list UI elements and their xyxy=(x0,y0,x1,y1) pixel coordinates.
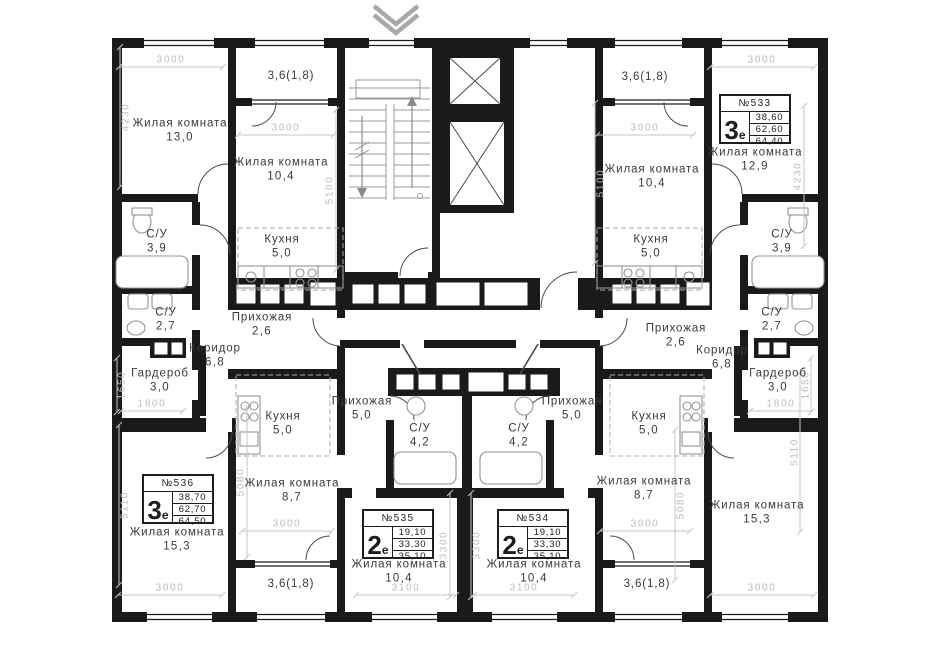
room-area: 2,7 xyxy=(155,320,177,334)
room-area: 3,9 xyxy=(771,242,793,256)
room-name: Жилая комната xyxy=(605,164,700,176)
apartment-type: 3е xyxy=(721,112,750,142)
sink-icon xyxy=(407,397,425,415)
room-area: 12,9 xyxy=(708,160,803,174)
room-label: С/У4,2 xyxy=(508,422,530,451)
toilet-icon xyxy=(795,321,813,335)
dimension-label: 4230 xyxy=(121,103,132,132)
apartment-areas: 19,1033,3035,10 xyxy=(393,527,432,557)
room-label: Жилая комната10,4 xyxy=(234,156,329,185)
room-label: Кухня5,0 xyxy=(264,233,299,262)
balcony-label: 3,6(1,8) xyxy=(622,71,669,83)
apartment-area-value: 33,30 xyxy=(528,539,567,551)
apartment-area-value: 38,70 xyxy=(173,492,212,504)
apartment-area-value: 35,10 xyxy=(528,551,567,562)
dimension-label: 5110 xyxy=(790,438,801,466)
room-label: Гардероб3,0 xyxy=(131,367,189,396)
apartment-areas: 38,6062,6064,40 xyxy=(750,112,789,142)
apartment-area-value: 35,10 xyxy=(393,551,432,562)
room-area: 10,4 xyxy=(352,572,447,586)
room-label: Жилая комната8,7 xyxy=(597,475,692,504)
room-label: С/У3,9 xyxy=(771,228,793,257)
apartment-type: 2е xyxy=(364,527,393,557)
floor-plan-drawing xyxy=(0,0,950,672)
bathtub-icon xyxy=(394,452,456,484)
room-area: 5,0 xyxy=(332,409,393,423)
apartment-area-value: 38,60 xyxy=(750,112,789,124)
apartment-details: 3е38,6062,6064,40 xyxy=(721,112,789,142)
room-area: 3,0 xyxy=(131,381,189,395)
room-label: Прихожая5,0 xyxy=(542,395,603,424)
room-area: 10,4 xyxy=(605,177,700,191)
apartment-area-value: 19,10 xyxy=(393,527,432,539)
dimension-label: 3000 xyxy=(631,519,660,530)
room-name: С/У xyxy=(508,423,530,435)
staircase xyxy=(349,80,430,200)
room-label: Гардероб3,0 xyxy=(749,367,807,396)
apartment-info-box: №5342е19,1033,3035,10 xyxy=(497,509,569,559)
room-name: Прихожая xyxy=(646,323,707,335)
apartment-area-value: 64,40 xyxy=(750,136,789,147)
room-area: 3,0 xyxy=(749,381,807,395)
apartment-number: №536 xyxy=(144,476,212,492)
room-area: 5,0 xyxy=(264,247,299,261)
room-area: 6,8 xyxy=(189,356,241,370)
kitchen-sink-icon xyxy=(240,432,258,446)
dimension-label: 1800 xyxy=(767,399,796,410)
apartment-info-box: №5333е38,6062,6064,40 xyxy=(719,94,791,144)
room-area: 8,7 xyxy=(245,491,340,505)
room-label: Жилая комната10,4 xyxy=(605,163,700,192)
room-name: С/У xyxy=(155,307,177,319)
room-area: 5,0 xyxy=(631,424,666,438)
dimension-label: 3300 xyxy=(439,531,450,560)
apartment-info-box: №5363е38,7062,7064,50 xyxy=(142,474,214,524)
room-name: Жилая комната xyxy=(710,500,805,512)
room-name: Жилая комната xyxy=(245,478,340,490)
room-name: Прихожая xyxy=(332,396,393,408)
elevator-shafts xyxy=(440,48,514,213)
dimension-label: 3000 xyxy=(748,55,777,66)
stove-burner-icon xyxy=(296,269,304,277)
room-label: Жилая комната15,3 xyxy=(710,499,805,528)
dimension-label: 5110 xyxy=(120,491,131,519)
room-label: Коридор6,8 xyxy=(189,342,241,371)
apartment-type: 2е xyxy=(499,527,528,557)
room-name: Жилая комната xyxy=(133,118,228,130)
balcony-label: 3,6(1,8) xyxy=(268,578,315,590)
room-area: 5,0 xyxy=(265,424,300,438)
entrance-chevron-icon xyxy=(374,6,418,33)
room-area: 10,4 xyxy=(487,572,582,586)
apartment-area-value: 33,30 xyxy=(393,539,432,551)
room-label: Жилая комната13,0 xyxy=(133,117,228,146)
room-area: 4,2 xyxy=(409,436,431,450)
room-label: С/У4,2 xyxy=(409,422,431,451)
room-label: Жилая комната12,9 xyxy=(708,146,803,175)
dimension-label: 1650 xyxy=(117,371,128,400)
apartment-type: 3е xyxy=(144,492,173,522)
room-name: Гардероб xyxy=(749,368,807,380)
bathtub-icon xyxy=(116,256,188,288)
apartment-area-value: 64,50 xyxy=(173,516,212,527)
room-label: С/У2,7 xyxy=(761,306,783,335)
room-area: 5,0 xyxy=(633,247,668,261)
room-label: Жилая комната8,7 xyxy=(245,477,340,506)
room-name: С/У xyxy=(409,423,431,435)
room-name: С/У xyxy=(771,229,793,241)
sink-icon xyxy=(128,294,148,309)
room-area: 2,6 xyxy=(646,336,707,350)
bathtub-icon xyxy=(752,256,824,288)
dimension-label: 3300 xyxy=(472,531,483,560)
sink-icon xyxy=(515,397,533,415)
apartment-number: №533 xyxy=(721,96,789,112)
room-area: 2,7 xyxy=(761,320,783,334)
bathtub-icon xyxy=(480,452,542,484)
room-label: Кухня5,0 xyxy=(265,410,300,439)
room-label: Жилая комната15,3 xyxy=(130,526,225,555)
room-label: С/У3,9 xyxy=(146,228,168,257)
room-name: С/У xyxy=(146,229,168,241)
apartment-details: 2е19,1033,3035,10 xyxy=(499,527,567,557)
room-label: Кухня5,0 xyxy=(633,233,668,262)
room-name: Коридор xyxy=(189,343,241,355)
dimension-label: 3000 xyxy=(272,123,301,134)
apartment-number: №535 xyxy=(364,511,432,527)
room-area: 15,3 xyxy=(710,513,805,527)
room-name: Жилая комната xyxy=(597,476,692,488)
dimension-label: 3000 xyxy=(631,123,660,134)
room-label: Прихожая2,6 xyxy=(646,322,707,351)
room-label: С/У2,7 xyxy=(155,306,177,335)
dimension-label: 3000 xyxy=(156,583,185,594)
apartment-info-box: №5352е19,1033,3035,10 xyxy=(362,509,434,559)
apartment-area-value: 62,60 xyxy=(750,124,789,136)
room-label: Кухня5,0 xyxy=(631,410,666,439)
room-label: Прихожая2,6 xyxy=(232,311,293,340)
room-label: Прихожая5,0 xyxy=(332,395,393,424)
room-name: Кухня xyxy=(633,234,668,246)
room-area: 2,6 xyxy=(232,325,293,339)
apartment-area-value: 19,10 xyxy=(528,527,567,539)
room-name: Прихожая xyxy=(542,396,603,408)
balcony-label: 3,6(1,8) xyxy=(268,70,315,82)
room-area: 3,9 xyxy=(146,242,168,256)
dimension-label: 3000 xyxy=(748,583,777,594)
room-name: С/У xyxy=(761,307,783,319)
room-area: 4,2 xyxy=(508,436,530,450)
room-area: 8,7 xyxy=(597,489,692,503)
dimension-label: 3000 xyxy=(157,55,186,66)
sink-icon xyxy=(792,294,812,309)
room-name: Жилая комната xyxy=(708,147,803,159)
apartment-area-value: 62,70 xyxy=(173,504,212,516)
kitchen-sink-icon xyxy=(682,432,700,446)
room-area: 5,0 xyxy=(542,409,603,423)
room-name: Кухня xyxy=(631,411,666,423)
dimension-label: 3000 xyxy=(273,519,302,530)
room-area: 6,8 xyxy=(696,358,748,372)
apartment-details: 2е19,1033,3035,10 xyxy=(364,527,432,557)
apartment-areas: 19,1033,3035,10 xyxy=(528,527,567,557)
room-name: Жилая комната xyxy=(130,527,225,539)
room-name: Кухня xyxy=(265,411,300,423)
apartment-number: №534 xyxy=(499,511,567,527)
floor-plan: Жилая комната13,0Жилая комната10,4Кухня5… xyxy=(0,0,950,672)
apartment-details: 3е38,7062,7064,50 xyxy=(144,492,212,522)
room-area: 10,4 xyxy=(234,170,329,184)
dimension-label: 1800 xyxy=(138,399,167,410)
balcony-label: 3,6(1,8) xyxy=(624,578,671,590)
room-area: 13,0 xyxy=(133,131,228,145)
room-area: 15,3 xyxy=(130,540,225,554)
room-name: Жилая комната xyxy=(234,157,329,169)
room-name: Гардероб xyxy=(131,368,189,380)
apartment-areas: 38,7062,7064,50 xyxy=(173,492,212,522)
toilet-icon xyxy=(127,321,145,335)
room-name: Кухня xyxy=(264,234,299,246)
room-name: Прихожая xyxy=(232,312,293,324)
